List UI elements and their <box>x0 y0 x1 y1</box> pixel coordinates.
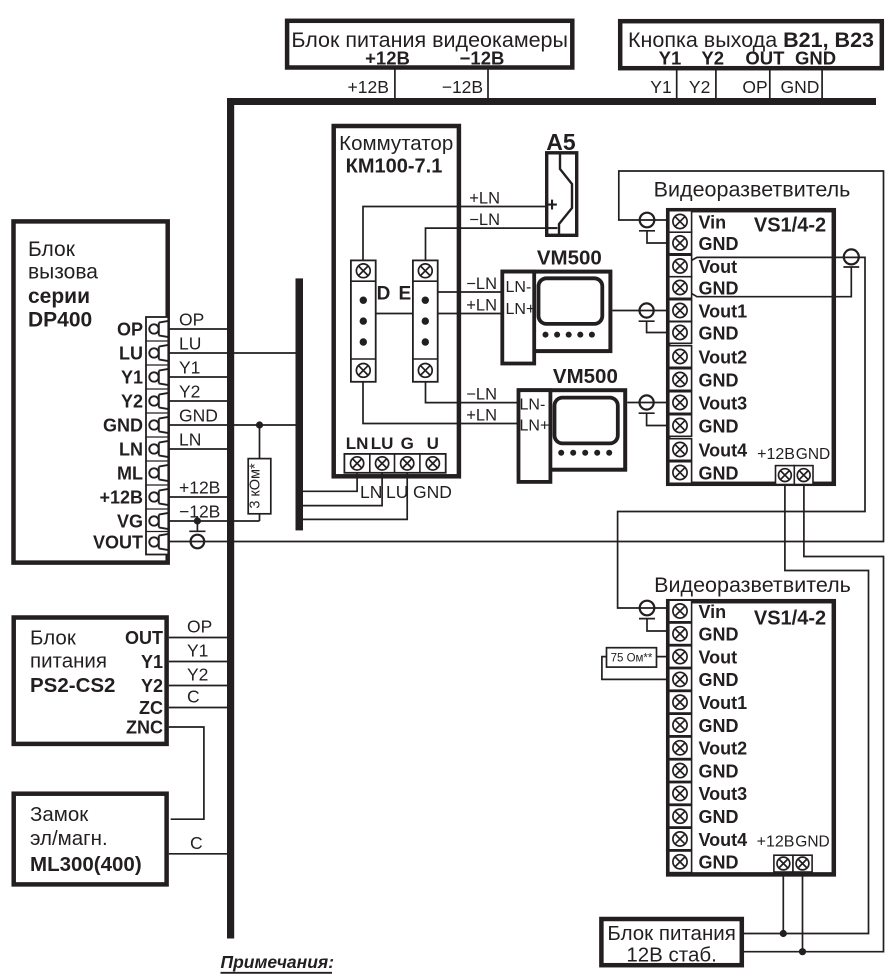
svg-text:VS1/4-2: VS1/4-2 <box>754 215 826 237</box>
svg-text:−LN: −LN <box>469 211 500 229</box>
svg-text:GND: GND <box>699 278 739 298</box>
svg-text:+12В: +12В <box>99 487 143 507</box>
svg-text:Блок питания видеокамеры: Блок питания видеокамеры <box>291 28 568 52</box>
svg-text:D: D <box>377 284 391 305</box>
svg-text:Vout2: Vout2 <box>699 347 748 367</box>
svg-text:VG: VG <box>117 511 143 531</box>
svg-text:ZC: ZC <box>139 698 163 718</box>
svg-text:Y1: Y1 <box>659 48 682 69</box>
svg-text:Vin: Vin <box>699 212 727 232</box>
svg-text:C: C <box>190 833 203 853</box>
svg-text:GND: GND <box>699 234 739 254</box>
svg-text:Y2: Y2 <box>121 391 143 411</box>
svg-text:LN-: LN- <box>506 279 532 296</box>
svg-text:VM500: VM500 <box>537 247 602 270</box>
svg-text:+LN: +LN <box>469 190 500 208</box>
svg-text:Y1: Y1 <box>650 77 671 97</box>
svg-text:PS2-CS2: PS2-CS2 <box>30 674 115 697</box>
svg-text:OUT: OUT <box>745 48 785 69</box>
svg-text:ZNC: ZNC <box>126 717 163 737</box>
svg-text:GND: GND <box>699 670 739 690</box>
svg-text:LN: LN <box>360 482 382 502</box>
svg-text:Примечания:: Примечания: <box>221 952 335 972</box>
svg-text:E: E <box>398 284 411 305</box>
svg-text:Vin: Vin <box>699 602 727 622</box>
svg-text:VOUT: VOUT <box>93 532 143 552</box>
svg-text:+LN: +LN <box>466 297 497 315</box>
svg-text:Vout4: Vout4 <box>699 830 748 850</box>
svg-text:C: C <box>187 687 200 707</box>
svg-text:GND: GND <box>795 834 829 851</box>
svg-text:GND: GND <box>103 415 143 435</box>
svg-text:G: G <box>401 434 414 453</box>
svg-text:−LN: −LN <box>466 275 497 293</box>
svg-text:+12В: +12В <box>365 48 410 69</box>
svg-text:GND: GND <box>413 482 452 502</box>
svg-text:Y1: Y1 <box>121 367 143 387</box>
svg-text:GND: GND <box>699 853 739 873</box>
svg-text:LN-: LN- <box>520 397 546 414</box>
svg-text:Блок питания: Блок питания <box>607 922 735 945</box>
svg-text:U: U <box>427 434 439 453</box>
svg-text:А5: А5 <box>546 129 576 155</box>
svg-text:OP: OP <box>179 310 204 330</box>
svg-text:Видеоразветвитель: Видеоразветвитель <box>654 573 851 597</box>
svg-text:12В стаб.: 12В стаб. <box>626 944 716 967</box>
svg-text:Блок: Блок <box>30 627 77 650</box>
svg-text:3 кОм*: 3 кОм* <box>248 463 264 509</box>
svg-text:OP: OP <box>742 77 767 97</box>
svg-text:+12В: +12В <box>179 478 220 498</box>
svg-text:GND: GND <box>699 625 739 645</box>
svg-text:+12В: +12В <box>757 446 795 463</box>
svg-text:GND: GND <box>699 807 739 827</box>
svg-text:VM500: VM500 <box>553 365 618 388</box>
svg-text:LU: LU <box>386 482 408 502</box>
svg-text:GND: GND <box>699 761 739 781</box>
svg-text:эл/магн.: эл/магн. <box>30 827 108 850</box>
svg-text:LN: LN <box>179 430 201 450</box>
svg-text:Vout1: Vout1 <box>699 693 748 713</box>
svg-text:OP: OP <box>117 319 143 339</box>
svg-text:LU: LU <box>371 434 394 453</box>
svg-text:серии: серии <box>28 285 90 308</box>
svg-text:Y2: Y2 <box>701 48 724 69</box>
svg-text:Коммутатор: Коммутатор <box>339 132 453 155</box>
svg-text:Y1: Y1 <box>187 641 208 661</box>
svg-text:GND: GND <box>699 716 739 736</box>
svg-text:VS1/4-2: VS1/4-2 <box>754 608 826 630</box>
svg-text:Замок: Замок <box>30 803 89 826</box>
svg-text:GND: GND <box>796 446 830 463</box>
svg-text:GND: GND <box>699 416 739 436</box>
svg-text:Видеоразветвитель: Видеоразветвитель <box>654 178 851 202</box>
svg-text:75 Ом**: 75 Ом** <box>611 653 653 665</box>
svg-text:LN: LN <box>346 434 369 453</box>
svg-text:−: − <box>547 219 558 240</box>
svg-text:LU: LU <box>119 343 143 363</box>
svg-text:Vout4: Vout4 <box>699 440 748 460</box>
svg-text:OP: OP <box>187 617 212 637</box>
svg-text:Vout: Vout <box>699 257 738 277</box>
svg-text:GND: GND <box>699 323 739 343</box>
svg-text:Vout1: Vout1 <box>699 301 748 321</box>
svg-text:GND: GND <box>699 463 739 483</box>
svg-text:−12В: −12В <box>179 502 220 522</box>
svg-text:Блок: Блок <box>28 238 76 261</box>
svg-text:DP400: DP400 <box>28 309 92 332</box>
svg-text:Y2: Y2 <box>187 665 208 685</box>
svg-text:Y1: Y1 <box>141 652 163 672</box>
svg-text:+12В: +12В <box>348 77 389 97</box>
svg-text:+LN: +LN <box>466 407 497 425</box>
svg-text:LN+: LN+ <box>520 418 550 435</box>
svg-text:LU: LU <box>179 334 201 354</box>
svg-text:Vout3: Vout3 <box>699 393 748 413</box>
svg-text:Y1: Y1 <box>179 358 200 378</box>
svg-text:GND: GND <box>795 48 836 69</box>
svg-text:питания: питания <box>30 650 107 673</box>
svg-text:Y2: Y2 <box>141 676 163 696</box>
svg-text:ML300(400): ML300(400) <box>30 853 142 876</box>
svg-text:OUT: OUT <box>125 628 163 648</box>
svg-text:ML: ML <box>117 463 143 483</box>
svg-text:Vout: Vout <box>699 647 738 667</box>
svg-text:LN+: LN+ <box>506 301 536 318</box>
svg-text:−12В: −12В <box>460 48 505 69</box>
svg-text:Y2: Y2 <box>179 382 200 402</box>
svg-text:−12В: −12В <box>442 77 483 97</box>
svg-text:GND: GND <box>781 77 820 97</box>
svg-text:Y2: Y2 <box>689 77 710 97</box>
svg-text:КМ100-7.1: КМ100-7.1 <box>346 156 443 178</box>
svg-text:−LN: −LN <box>466 386 497 404</box>
svg-text:GND: GND <box>699 370 739 390</box>
svg-text:GND: GND <box>179 406 218 426</box>
svg-text:вызова: вызова <box>28 261 98 284</box>
svg-text:+12В: +12В <box>757 834 795 851</box>
svg-text:Vout3: Vout3 <box>699 784 748 804</box>
svg-text:Vout2: Vout2 <box>699 739 748 759</box>
svg-text:LN: LN <box>119 439 143 459</box>
svg-text:+: + <box>546 195 557 216</box>
